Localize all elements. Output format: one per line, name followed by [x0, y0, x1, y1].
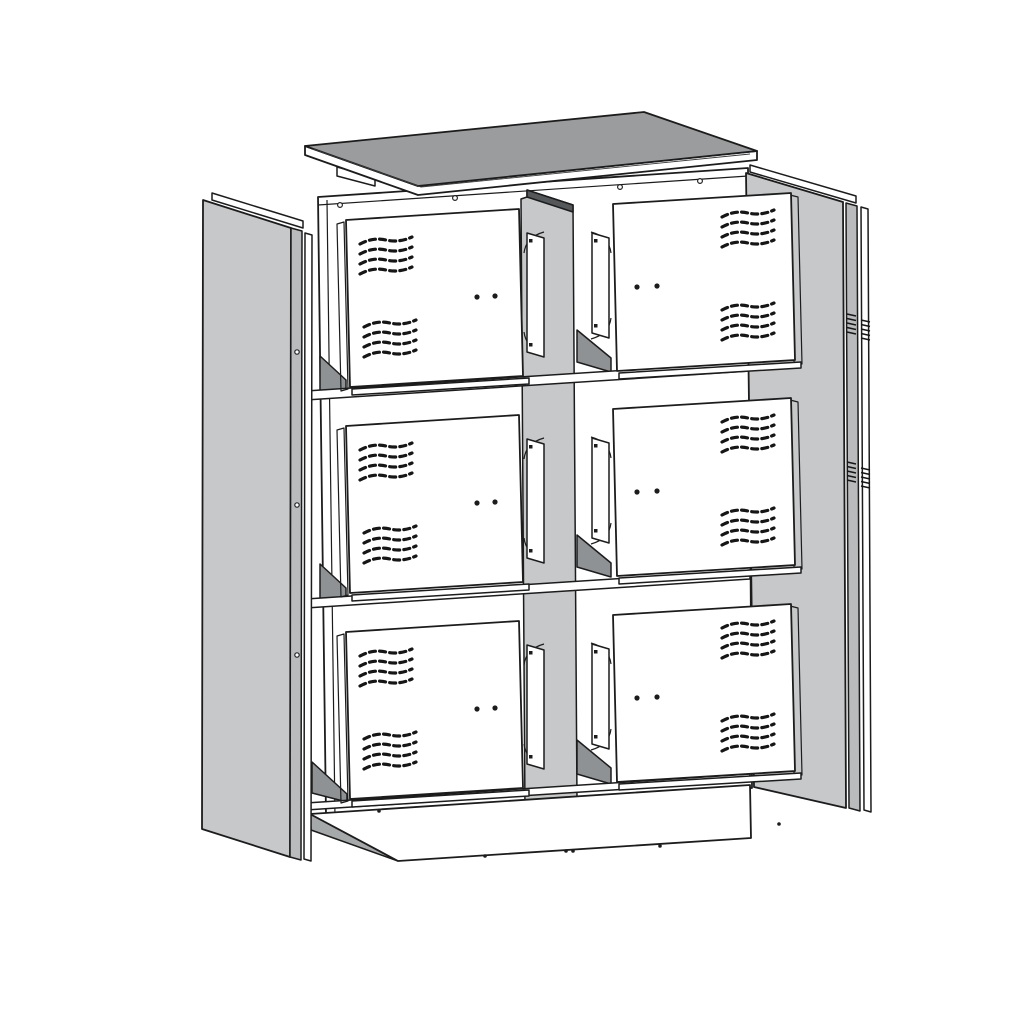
screw-hole [295, 653, 299, 657]
exploded-cabinet-diagram: Exploded view of a two-column, three-tie… [0, 0, 1024, 1024]
door-hole [654, 283, 659, 288]
catch-strip [524, 438, 544, 563]
screw-hole [338, 203, 343, 208]
door-face [613, 193, 795, 371]
screw-hole [618, 185, 623, 190]
door-hole [634, 489, 639, 494]
door-top-left [337, 209, 529, 395]
left-side-panel [202, 193, 312, 861]
left-panel-face [202, 200, 291, 857]
screw-hole [564, 849, 568, 853]
door-hole [492, 705, 497, 710]
left-panel-flange [290, 228, 302, 860]
door-hole [474, 294, 479, 299]
screw-hole [658, 844, 662, 848]
catch-strip [591, 437, 611, 544]
door-face [613, 604, 795, 782]
screw-hole [483, 854, 487, 858]
screw-hole [453, 196, 458, 201]
door-hole [634, 695, 639, 700]
catch-strip [591, 643, 611, 750]
catch-strip [524, 232, 544, 357]
right-panel-flange [846, 203, 860, 811]
screw-hole [777, 822, 781, 826]
door-hole [654, 488, 659, 493]
catch-strip [524, 644, 544, 769]
screw-hole [377, 809, 381, 813]
door-top-right [613, 193, 802, 379]
door-hole [492, 499, 497, 504]
door-hole [654, 694, 659, 699]
right-panel-flange-outer [861, 207, 871, 812]
screw-hole [295, 350, 299, 354]
door-middle-right [613, 398, 802, 584]
door-bottom-left [337, 621, 529, 807]
catch-strip [591, 232, 611, 339]
door-hole [474, 706, 479, 711]
door-hole [634, 284, 639, 289]
door-hole [492, 293, 497, 298]
door-face [613, 398, 795, 576]
screw-hole [571, 849, 575, 853]
screw-hole [295, 503, 299, 507]
screw-hole [698, 179, 703, 184]
door-hole [474, 500, 479, 505]
exploded-cabinet-diagram-page: Exploded view of a two-column, three-tie… [0, 0, 1024, 1024]
door-bottom-right [613, 604, 802, 790]
left-panel-flange-outer [304, 233, 312, 861]
door-middle-left [337, 415, 529, 601]
